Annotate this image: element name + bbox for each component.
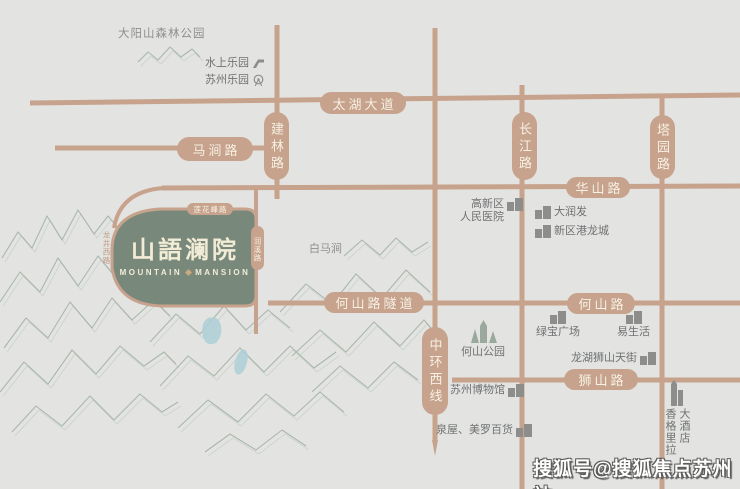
road-zhonghuan-taper <box>432 440 438 456</box>
poi-label: 大阳山森林公园 <box>118 28 206 41</box>
project-title-cn: 山語澜院 <box>112 237 258 263</box>
poi-label-col1: 香格里拉 <box>664 408 676 456</box>
building-icon <box>550 311 566 324</box>
building-icon <box>516 424 532 437</box>
poi-label: 高新区人民医院 <box>460 198 504 224</box>
road-pill-huashan: 华山路 <box>566 177 630 198</box>
poi-label: 大润发 <box>554 206 587 219</box>
tower-icon <box>667 380 687 406</box>
road-pill-majian: 马涧路 <box>177 137 253 161</box>
road-pill-heshan-tunnel: 何山路隧道 <box>324 292 424 313</box>
poi-label: 新区港龙城 <box>554 225 609 238</box>
poi-baimajian: 白马涧 <box>309 243 342 256</box>
poi-label: 香格里拉 大酒店 <box>664 408 690 456</box>
road-pill-changjiang: 长江路 <box>512 112 537 180</box>
ferris-wheel-icon <box>252 74 265 87</box>
poi-label: 龙湖狮山天街 <box>571 352 637 365</box>
road-label-west-side: 龙井西路 <box>101 231 112 279</box>
poi-suzhou-museum: 苏州博物馆 <box>450 384 524 397</box>
poi-label-col2: 大酒店 <box>678 408 690 456</box>
watermark: 搜狐号@搜狐焦点苏州站 <box>533 454 740 489</box>
poi-shangri-la-hotel: 香格里拉 大酒店 <box>664 380 690 456</box>
poi-label: 白马涧 <box>309 243 342 256</box>
poi-hospital: 高新区人民医院 <box>460 198 523 224</box>
poi-label: 绿宝广场 <box>536 326 580 339</box>
building-icon <box>507 198 523 211</box>
building-icon <box>535 206 551 219</box>
poi-lvbao-plaza: 绿宝广场 <box>536 311 580 339</box>
road-pill-taihu-avenue: 太湖大道 <box>320 92 406 114</box>
project-title-en-word2: MANSION <box>195 268 250 277</box>
poi-suzhou-amusement-park: 苏州乐园 <box>205 74 265 87</box>
building-icon <box>508 384 524 397</box>
poi-ganglong-city: 新区港龙城 <box>535 225 609 238</box>
poi-heshan-park: 何山公园 <box>461 318 505 359</box>
road-pill-jianlin: 建林路 <box>264 112 289 180</box>
poi-yi-life: 易生活 <box>617 311 650 339</box>
real-estate-location-map: 山語澜院 MOUNTAIN MANSION 太湖大道 马涧路 建林路 长江路 塔… <box>0 0 740 489</box>
poi-label: 泉屋、美罗百货 <box>436 424 513 437</box>
road-huashan <box>162 186 740 188</box>
poi-label-line2: 人民医院 <box>460 211 504 224</box>
road-pill-shishan: 狮山路 <box>564 369 638 390</box>
poi-water-park: 水上乐园 <box>205 57 265 70</box>
road-pill-zhonghuan-west: 中环西线 <box>422 327 448 415</box>
building-icon <box>626 311 642 324</box>
building-icon <box>640 352 656 365</box>
building-icon <box>535 225 551 238</box>
project-label: 山語澜院 MOUNTAIN MANSION <box>112 237 258 277</box>
poi-longhu-shishan-street: 龙湖狮山天街 <box>571 352 656 365</box>
poi-label: 易生活 <box>617 326 650 339</box>
diamond-icon <box>185 269 192 276</box>
water-slide-icon <box>252 57 265 70</box>
poi-dayangshan-forest-park: 大阳山森林公园 <box>118 28 206 41</box>
road-pill-lianhuafeng: 莲花峰路 <box>187 203 233 215</box>
poi-label: 苏州乐园 <box>205 74 249 87</box>
poi-rt-mart: 大润发 <box>535 206 587 219</box>
poi-quanwu-meiluo: 泉屋、美罗百货 <box>436 424 532 437</box>
project-title-en-word1: MOUNTAIN <box>120 268 183 277</box>
poi-label-line1: 高新区 <box>460 198 504 211</box>
poi-label: 苏州博物馆 <box>450 384 505 397</box>
park-icon <box>466 318 500 344</box>
poi-label: 何山公园 <box>461 346 505 359</box>
road-pill-tayuan: 塔园路 <box>650 115 675 179</box>
poi-label: 水上乐园 <box>205 57 249 70</box>
project-title-en: MOUNTAIN MANSION <box>112 268 258 277</box>
